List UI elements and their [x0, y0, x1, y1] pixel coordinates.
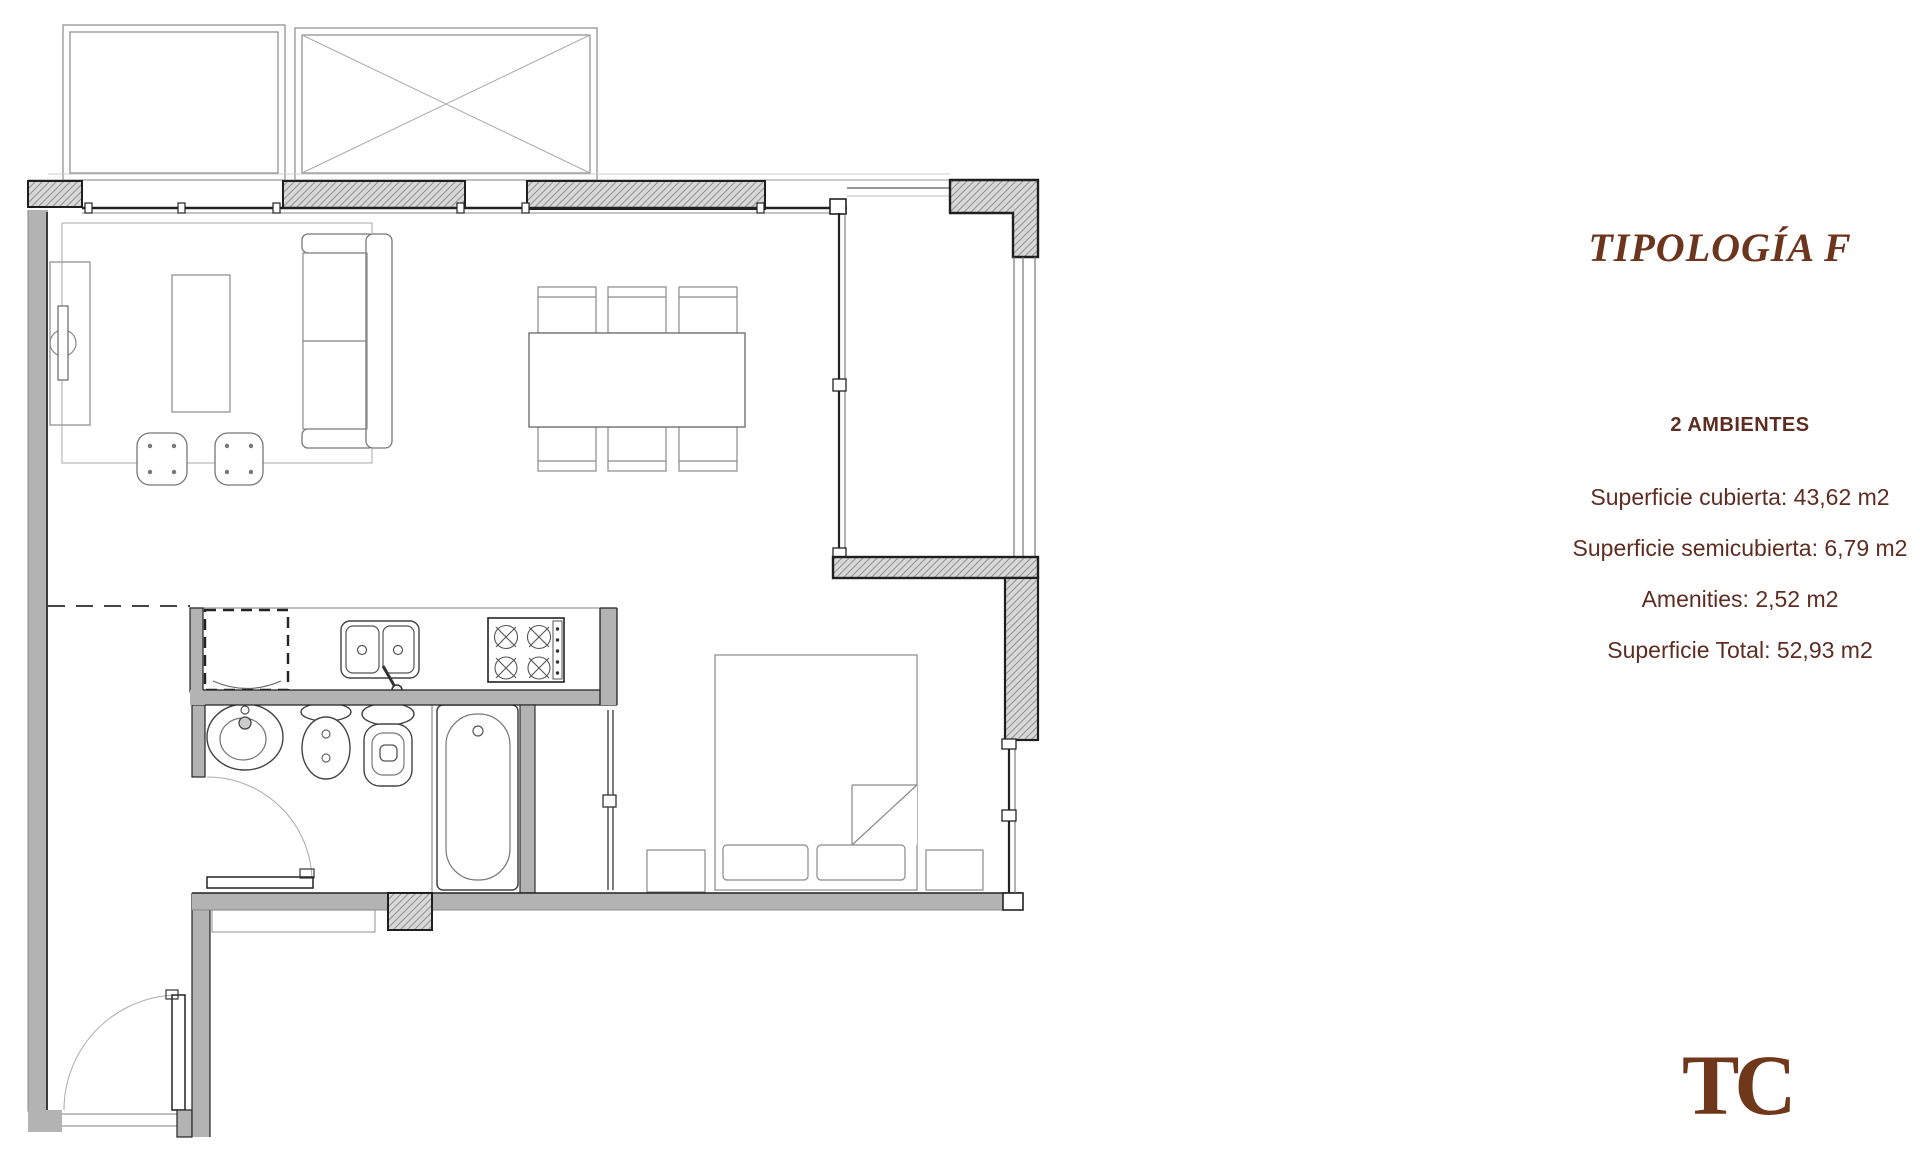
- entry-right-wall: [192, 893, 210, 1137]
- ottoman-poufs: [137, 433, 263, 485]
- coffee-table: [172, 275, 230, 412]
- sofa: [302, 234, 392, 448]
- corridor-closet: [212, 910, 375, 932]
- rooms-subtitle: 2 AMBIENTES: [1540, 412, 1920, 438]
- bottom-wall-bath-bedroom: [192, 893, 1023, 910]
- balcony-corner-pillar: [950, 180, 1038, 257]
- fridge: [205, 610, 288, 690]
- toilet: [362, 703, 414, 786]
- top-window-sill-line: [28, 174, 950, 180]
- bathroom-left-wall: [192, 705, 205, 777]
- stat-covered-area: Superficie cubierta: 43,62 m2: [1540, 482, 1920, 512]
- top-wall-pier-left: [28, 181, 82, 207]
- bed: [715, 655, 917, 890]
- balcony-right-railing: [1014, 257, 1035, 557]
- living-balcony-glazing: [833, 213, 846, 559]
- bathroom-door: [207, 777, 314, 888]
- bathroom-basin: [207, 704, 283, 770]
- bedroom-right-wall: [1005, 578, 1038, 740]
- stat-amenities-area: Amenities: 2,52 m2: [1540, 584, 1920, 614]
- balcony-bottom-wall: [833, 557, 1038, 578]
- bathtub: [437, 705, 518, 890]
- stat-total-area: Superficie Total: 52,93 m2: [1540, 635, 1920, 665]
- tc-logo: TC: [1682, 1042, 1791, 1128]
- kitchen-bathroom-wall: [190, 690, 617, 705]
- floor-plan: [0, 0, 1060, 1170]
- bathroom-right-wall: [520, 705, 535, 893]
- bidet: [301, 703, 351, 779]
- entry-door: [64, 990, 185, 1110]
- bedroom-closet-slider-door: [603, 710, 616, 890]
- top-wall-pier-middle: [283, 181, 465, 208]
- balcony-top-railing: [847, 188, 950, 196]
- entry-bottom-wall: [28, 1110, 192, 1137]
- planter-box-right-x-brace: [295, 28, 597, 180]
- living-room-rug: [62, 223, 372, 463]
- bedroom-window: [1002, 739, 1016, 893]
- nightstand-left: [647, 850, 705, 892]
- typology-title: TIPOLOGÍA F: [1500, 224, 1920, 271]
- top-wall-pier-right: [527, 181, 765, 209]
- cooktop-stove: [488, 618, 564, 682]
- kitchen-right-wall: [600, 608, 617, 705]
- bottom-wall-hatched-pier: [388, 893, 432, 930]
- tv-unit: [50, 262, 90, 425]
- left-exterior-wall: [28, 210, 48, 1112]
- dining-table: [529, 333, 745, 427]
- planter-box-left: [63, 25, 285, 180]
- kitchen-sink: [341, 621, 419, 695]
- stat-semicovered-area: Superficie semicubierta: 6,79 m2: [1540, 533, 1920, 563]
- stats-block: 2 AMBIENTES Superficie cubierta: 43,62 m…: [1540, 412, 1920, 686]
- kitchen-left-wall: [190, 608, 203, 692]
- nightstand-right: [926, 850, 983, 890]
